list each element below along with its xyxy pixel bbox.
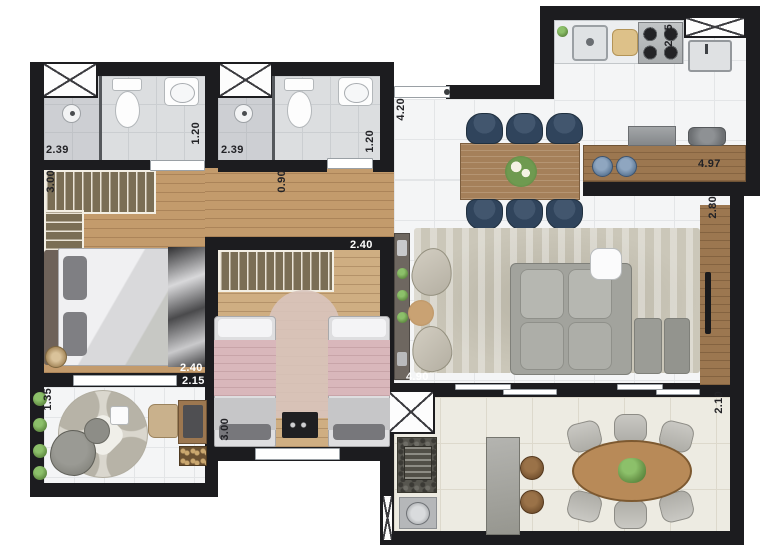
pink-quilt bbox=[328, 340, 390, 396]
shower-head-dot-2 bbox=[242, 111, 247, 116]
tv bbox=[705, 272, 711, 334]
plant-icon bbox=[33, 418, 47, 432]
shower-glass-2 bbox=[272, 76, 275, 160]
dim-living-depth: 2.80 bbox=[707, 196, 719, 219]
dim-bathroom1-width: 2.39 bbox=[46, 144, 69, 156]
toilet-tank-1 bbox=[112, 78, 142, 91]
wall bbox=[30, 62, 44, 497]
dim-bathroom1-depth: 1.20 bbox=[190, 122, 202, 145]
tank-faucet bbox=[705, 44, 708, 54]
balcony-sliding-door bbox=[503, 389, 557, 395]
balcony-island bbox=[486, 437, 520, 535]
dining-chair bbox=[466, 113, 503, 144]
dim-office-width: 1.35 bbox=[42, 388, 54, 411]
wall bbox=[218, 160, 327, 172]
pillow bbox=[63, 256, 87, 300]
balcony-sink bbox=[406, 502, 430, 525]
wall bbox=[380, 62, 394, 168]
dim-kitchen-length: 4.97 bbox=[698, 158, 721, 170]
sofa-cushion bbox=[520, 322, 564, 370]
dining-chair bbox=[506, 113, 543, 144]
bar-stool bbox=[520, 490, 544, 514]
plant-icon bbox=[33, 466, 47, 480]
bedroom-pouf bbox=[45, 346, 67, 368]
toilet-2 bbox=[287, 91, 312, 128]
office-cabinet bbox=[179, 446, 207, 466]
pillow bbox=[332, 319, 386, 337]
foot-cushion bbox=[333, 424, 385, 440]
bar-stool bbox=[520, 456, 544, 480]
dim-bedroom2-length: 2.40 bbox=[350, 239, 373, 251]
dim-bedroom2-width: 3.00 bbox=[219, 418, 231, 441]
dim-bathroom2-width: 2.39 bbox=[221, 144, 244, 156]
laundry-tank bbox=[688, 40, 732, 72]
floor-corridor bbox=[205, 168, 394, 237]
washbasin-bowl-1 bbox=[170, 83, 195, 103]
counter-sink-bowl bbox=[592, 156, 613, 177]
dining-chair bbox=[546, 113, 583, 144]
shaft-balcony bbox=[387, 390, 435, 434]
entry-door-handle bbox=[444, 89, 450, 95]
counter-sink-bowl bbox=[616, 156, 637, 177]
stove bbox=[638, 22, 683, 64]
wall bbox=[30, 483, 218, 497]
master-window bbox=[73, 375, 177, 386]
desk-top bbox=[183, 405, 203, 438]
wall bbox=[205, 62, 218, 168]
shower-glass-1 bbox=[99, 76, 102, 160]
wall bbox=[583, 180, 760, 196]
shaft-window-bathroom-1 bbox=[42, 62, 98, 98]
service-window bbox=[684, 16, 746, 38]
grill-grate bbox=[404, 446, 432, 480]
dim-kitchen-depth: 2.95 bbox=[663, 24, 675, 47]
plant-icon bbox=[557, 26, 568, 37]
sofa-cushion bbox=[520, 269, 564, 319]
microwave bbox=[628, 126, 676, 146]
dim-master-width: 3.00 bbox=[45, 170, 57, 193]
toilet-1 bbox=[115, 91, 140, 128]
bedroom2-door bbox=[255, 448, 340, 460]
countertop-appliance bbox=[688, 127, 726, 146]
plant-icon bbox=[397, 290, 408, 301]
dim-master-length: 2.40 bbox=[180, 362, 203, 374]
tv-console bbox=[282, 412, 318, 438]
master-closet-top bbox=[46, 172, 154, 212]
floor-plan: 2.39 1.20 2.39 1.20 0.90 4.20 2.95 4.97 … bbox=[0, 0, 776, 560]
dining-chair bbox=[466, 199, 503, 230]
bedroom2-wardrobe bbox=[220, 252, 332, 290]
balcony-chair bbox=[614, 414, 647, 443]
shelf-object bbox=[397, 352, 407, 366]
wall bbox=[44, 160, 150, 172]
wall bbox=[373, 160, 394, 172]
office-side-cube bbox=[110, 406, 129, 425]
marble-throw-blanket bbox=[168, 247, 205, 367]
sofa-ottoman bbox=[664, 318, 690, 374]
table-centerpiece-flowers bbox=[505, 156, 537, 187]
entry-door bbox=[394, 86, 450, 98]
dim-balcony-depth: 2.10 bbox=[713, 391, 725, 414]
shaft-window-bathroom-2 bbox=[218, 62, 273, 98]
bathroom1-door bbox=[150, 160, 205, 171]
cutting-board bbox=[612, 29, 638, 56]
toilet-tank-2 bbox=[284, 78, 314, 91]
table-centerpiece-plant bbox=[618, 458, 646, 483]
pillow bbox=[218, 319, 272, 337]
wall bbox=[746, 6, 760, 196]
round-side-table bbox=[408, 300, 434, 326]
shelf-object bbox=[397, 240, 407, 256]
shower-head-dot-1 bbox=[70, 111, 75, 116]
dim-hall-length: 4.20 bbox=[395, 98, 407, 121]
balcony-chair bbox=[614, 500, 647, 529]
dining-chair bbox=[546, 199, 583, 230]
pink-quilt bbox=[214, 340, 276, 396]
wall bbox=[446, 85, 554, 99]
dim-living-length: 4.90 bbox=[406, 371, 429, 383]
dim-bathroom2-depth: 1.20 bbox=[364, 130, 376, 153]
dining-chair bbox=[506, 199, 543, 230]
balcony-side-window bbox=[381, 494, 394, 542]
plant-icon bbox=[33, 444, 47, 458]
dim-office-length: 2.15 bbox=[182, 375, 205, 387]
kitchen-sink-drain bbox=[586, 38, 594, 46]
pillow bbox=[63, 312, 87, 356]
coffee-table bbox=[590, 248, 622, 280]
balcony-sliding-door bbox=[656, 389, 700, 395]
plant-icon bbox=[397, 268, 408, 279]
wall bbox=[380, 531, 744, 545]
sofa-cushion bbox=[568, 322, 612, 370]
office-ottoman bbox=[84, 418, 110, 444]
bathroom2-door bbox=[327, 158, 373, 169]
washbasin-bowl-2 bbox=[344, 83, 369, 103]
wall bbox=[730, 196, 744, 545]
plant-icon bbox=[397, 312, 408, 323]
sofa-ottoman bbox=[634, 318, 662, 374]
desk-chair bbox=[148, 404, 178, 438]
dim-corridor-width: 0.90 bbox=[276, 170, 288, 193]
